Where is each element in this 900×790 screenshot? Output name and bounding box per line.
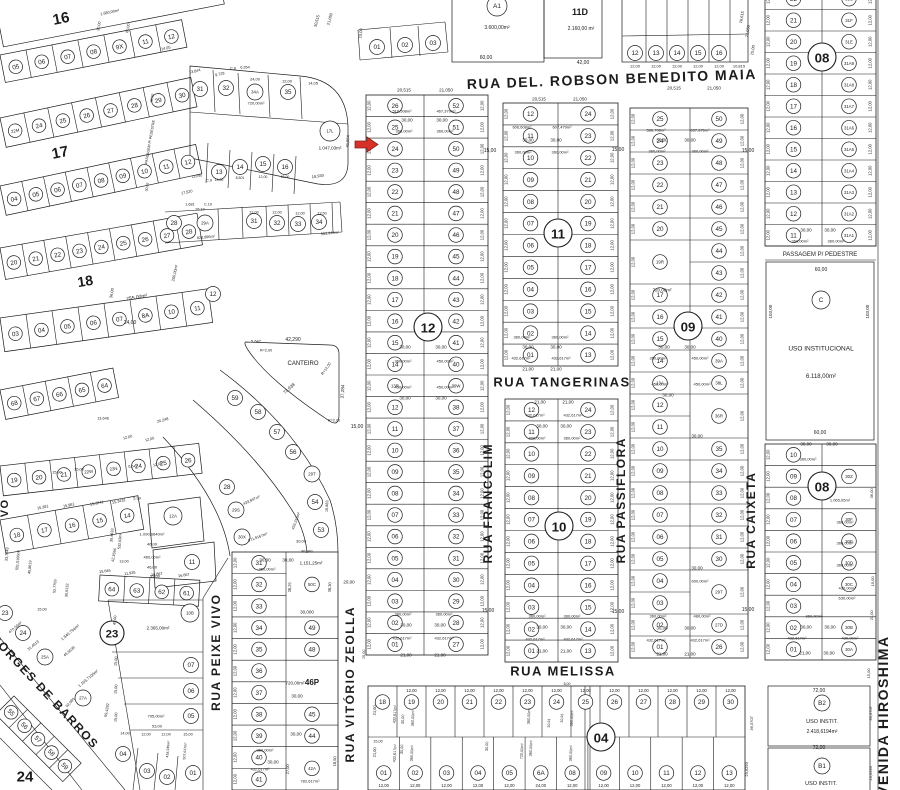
dimension-text: 12,00 bbox=[480, 638, 485, 649]
dimension-text: 450,00m² bbox=[652, 381, 670, 386]
dimension-text: 12,00 bbox=[480, 251, 485, 262]
dimension-text: 432,617m² bbox=[525, 412, 545, 417]
dimension-text: 12,00 bbox=[282, 78, 293, 83]
dimension-text: 30,00 bbox=[259, 558, 271, 563]
dimension-text: 12,00 bbox=[367, 552, 372, 563]
lot-number: 32 bbox=[715, 512, 723, 519]
block-number: 17 bbox=[50, 143, 70, 163]
lot-number: 28 bbox=[452, 620, 460, 627]
dimension-text: 12,00 bbox=[506, 601, 511, 612]
lot-number: 16 bbox=[391, 318, 399, 325]
dimension-text: 360,00m² bbox=[837, 540, 855, 545]
dimension-text: 46,00 bbox=[147, 564, 158, 569]
dimension-text: 15,00 bbox=[362, 649, 366, 659]
dimension-text: 12,00 bbox=[406, 688, 417, 693]
lot-number: 10 bbox=[527, 155, 535, 162]
dimension-text: 432,617m² bbox=[646, 637, 666, 642]
dimension-text: 720,00m² bbox=[248, 100, 266, 105]
dimension-text: 12,00 bbox=[249, 210, 259, 214]
lot-number: B2 bbox=[818, 700, 826, 707]
lot-number: 22 bbox=[656, 182, 664, 189]
lot-number: 08 bbox=[528, 495, 536, 502]
dimension-text: 12,00 bbox=[766, 622, 771, 633]
dimension-text: 432,617m² bbox=[392, 635, 412, 640]
dimension-text: 12,00 bbox=[506, 404, 511, 415]
lot-number: 25 bbox=[656, 116, 664, 123]
lot-number: 51 bbox=[452, 125, 460, 132]
dimension-text: 12,00 bbox=[480, 186, 485, 197]
dimension-text: 12,00 bbox=[766, 578, 771, 589]
dimension-text: 42,00 bbox=[577, 60, 590, 66]
street-label: RUA TANGERINAS bbox=[493, 375, 630, 390]
lot-number: 07 bbox=[790, 517, 798, 524]
dimension-text: 12,00 bbox=[480, 595, 485, 606]
lot-number: 07 bbox=[656, 512, 664, 519]
dimension-text: 12,00 bbox=[610, 108, 615, 119]
dimension-text: 630,00m² bbox=[839, 595, 857, 600]
dimension-text: 12,00 bbox=[610, 579, 615, 590]
dimension-text: 30,00 bbox=[550, 138, 562, 143]
dimension-text: 36,3707 bbox=[749, 715, 754, 730]
dimension-text: 12,00 bbox=[740, 179, 745, 190]
lot-number: 14 bbox=[584, 626, 592, 633]
dimension-text: 12,00 bbox=[868, 36, 873, 47]
lot-number: 24 bbox=[553, 699, 561, 706]
lot-number: 42 bbox=[452, 318, 460, 325]
lot-number: 12 bbox=[790, 211, 798, 218]
dimension-text: 12,00 bbox=[233, 730, 238, 741]
dimension-text: 12,00 bbox=[367, 121, 372, 132]
dimension-text: 12,00 bbox=[233, 665, 238, 676]
street-label: RUA CAIXETA bbox=[744, 472, 758, 569]
dimension-text: 30,00 bbox=[656, 626, 668, 631]
dimension-text: 12,00 bbox=[504, 240, 509, 251]
dimension-text: 12,00 bbox=[766, 143, 771, 154]
lot-number: 20 bbox=[35, 474, 43, 482]
dimension-text: 24,00 bbox=[250, 76, 261, 81]
lot-number: 30 bbox=[715, 556, 723, 563]
lot-number: 27A bbox=[79, 696, 87, 701]
dimension-text: 12,00 bbox=[740, 619, 745, 630]
dimension-text: 12,00 bbox=[367, 617, 372, 628]
dimension-text: 27,00 bbox=[285, 763, 291, 774]
dimension-text: 15,90 bbox=[52, 470, 62, 474]
dimension-text: 12,00 bbox=[367, 595, 372, 606]
dimension-text: 12,00 bbox=[631, 333, 636, 344]
lot-number: 30 bbox=[727, 699, 735, 706]
dimension-text: 12,00 bbox=[367, 444, 372, 455]
lot-number: 12 bbox=[527, 111, 535, 118]
lot-number: 24 bbox=[584, 111, 592, 118]
dimension-text: 30,00 bbox=[435, 396, 447, 401]
dimension-text: 12,00 bbox=[295, 211, 305, 215]
lot-number: 35 bbox=[452, 469, 460, 476]
lot-number: 04 bbox=[474, 770, 482, 777]
dimension-text: 53,00 bbox=[152, 723, 163, 728]
dimension-text: 15,00 bbox=[114, 712, 119, 722]
lot-number: 16 bbox=[656, 314, 664, 321]
dimension-text: 30,00 bbox=[485, 741, 489, 751]
dimension-text: 15,00 bbox=[742, 148, 755, 154]
lot-number: 08 bbox=[391, 491, 399, 498]
dimension-text: 24,00 bbox=[124, 320, 137, 326]
lot-number: 15 bbox=[656, 336, 664, 343]
dimension-text: 12,00 bbox=[766, 492, 771, 503]
lot-number: A1 bbox=[493, 3, 501, 10]
lot-number: 16 bbox=[715, 50, 723, 57]
dimension-text: 12,00 bbox=[651, 63, 662, 68]
dimension-text: 21,00 bbox=[400, 653, 412, 658]
lot-number: 31A1 bbox=[844, 233, 855, 238]
lot-number: 14 bbox=[236, 164, 244, 171]
lot-number: 37 bbox=[452, 426, 460, 433]
lot-number: 46 bbox=[452, 232, 460, 239]
lot-number: 49 bbox=[715, 138, 723, 145]
dimension-text: 12,00 bbox=[631, 575, 636, 586]
lot-number: 17 bbox=[584, 265, 592, 272]
lot-number: 14 bbox=[790, 168, 798, 175]
block-number: 04 bbox=[594, 730, 609, 745]
lot-number: 08 bbox=[790, 495, 798, 502]
dimension-text: 1,681 bbox=[185, 202, 195, 206]
dimension-text: 12,00 bbox=[506, 536, 511, 547]
dimension-text: 12,00 bbox=[480, 315, 485, 326]
dimension-text: 12,00 bbox=[480, 401, 485, 412]
dimension-text: 2.160,00 m² bbox=[568, 26, 595, 32]
lot-number: 05 bbox=[527, 265, 535, 272]
dimension-text: 30,00 bbox=[800, 228, 812, 233]
dimension-text: 21,00 bbox=[534, 400, 546, 405]
dimension-text: 1.047,03m² bbox=[319, 146, 342, 151]
lot-number: 20 bbox=[437, 699, 445, 706]
lot-number: 13 bbox=[652, 50, 660, 57]
lot-number: 31A5 bbox=[844, 147, 855, 152]
lot-number: 29T bbox=[308, 472, 316, 477]
lot-number: 36R bbox=[715, 414, 723, 419]
lot-number: 12A bbox=[169, 514, 177, 519]
lot-number: 40 bbox=[255, 755, 263, 762]
dimension-text: 12,00 bbox=[580, 688, 591, 693]
lot-number: 42A bbox=[308, 766, 316, 771]
dimension-text: 30,03 bbox=[560, 714, 564, 723]
map-viewport: 050607089X111222M24252627282930040506070… bbox=[0, 0, 900, 790]
dimension-text: 12,00 bbox=[868, 100, 873, 111]
lot-number: 26 bbox=[715, 644, 723, 651]
dimension-text: 60,00 bbox=[814, 430, 827, 436]
dimension-text: 30,00 bbox=[684, 626, 696, 631]
lot-number: 04 bbox=[790, 582, 798, 589]
dimension-text: 38,30 bbox=[327, 581, 333, 592]
dimension-text: 12,00 bbox=[868, 122, 873, 133]
lot-number: 41 bbox=[452, 340, 460, 347]
dimension-text: 46,00 bbox=[147, 541, 158, 546]
dimension-text: 12,00 bbox=[868, 165, 873, 176]
dimension-text: 20,515 bbox=[532, 97, 546, 102]
dimension-text: 12,00 bbox=[610, 404, 615, 415]
dimension-text: 12,00 bbox=[610, 305, 615, 316]
dimension-text: 12,00 bbox=[631, 256, 636, 267]
lot-number: 16 bbox=[281, 164, 289, 171]
dimension-text: 12,00 bbox=[367, 358, 372, 369]
lot-number: 22 bbox=[584, 155, 592, 162]
dimension-text: 12,00 bbox=[631, 531, 636, 542]
lot-number: 24 bbox=[391, 146, 399, 153]
dimension-text: 12,00 bbox=[504, 305, 509, 316]
lot-number: 21 bbox=[391, 211, 399, 218]
dimension-text: 15,00 bbox=[351, 424, 364, 430]
dimension-text: 12,00 bbox=[740, 641, 745, 652]
street-label: RUA VITÓRIO ZEOLLA bbox=[342, 606, 357, 763]
lot-number: 38L bbox=[715, 381, 723, 386]
lot-number: 29A bbox=[201, 221, 209, 226]
dimension-text: 13,00 bbox=[215, 178, 224, 182]
dimension-text: 12,00 bbox=[609, 688, 620, 693]
dimension-text: 12,00 bbox=[610, 218, 615, 229]
dimension-text: 36,00 bbox=[869, 488, 874, 499]
lot-number: 59 bbox=[231, 395, 239, 402]
dimension-text: 360,00m² bbox=[436, 611, 454, 616]
lot-number: 37 bbox=[255, 690, 263, 697]
lot-number: 38 bbox=[452, 405, 460, 412]
dimension-text: 12,00 bbox=[638, 688, 649, 693]
dimension-text: 21,00 bbox=[522, 367, 534, 372]
lot-number: 44 bbox=[715, 248, 723, 255]
dimension-text: 21,00 bbox=[372, 704, 378, 715]
lot-number: 45 bbox=[452, 254, 460, 261]
dimension-text: 12,00 bbox=[610, 327, 615, 338]
street-label: VO bbox=[0, 498, 11, 517]
lot-number: 29 bbox=[698, 699, 706, 706]
dimension-text: 12,00 bbox=[367, 423, 372, 434]
dimension-text: 12,00 bbox=[480, 272, 485, 283]
dimension-text: 30,03 bbox=[547, 719, 551, 728]
dimension-text: 12,00 bbox=[504, 349, 509, 360]
lot-number: 41 bbox=[715, 314, 723, 321]
dimension-text: 12,00 bbox=[766, 643, 771, 654]
block-number: 08 bbox=[815, 50, 830, 65]
dimension-text: 21,050 bbox=[573, 97, 587, 102]
dimension-text: 12,00 bbox=[631, 597, 636, 608]
dimension-text: 30,00 bbox=[800, 625, 812, 630]
lot-number: 17 bbox=[584, 561, 592, 568]
dimension-text: 12,00 bbox=[473, 783, 484, 788]
dimension-text: 12,00 bbox=[504, 283, 509, 294]
lot-number: 20 bbox=[584, 495, 592, 502]
lot-number: 22 bbox=[584, 451, 592, 458]
lot-number: 07 bbox=[187, 662, 195, 669]
dimension-text: 3.600,00m² bbox=[484, 25, 510, 31]
lot-number: 18 bbox=[584, 539, 592, 546]
dimension-text: 12,00 bbox=[480, 121, 485, 132]
dimension-text: 12,00 bbox=[441, 783, 452, 788]
dimension-text: 12,00 bbox=[504, 218, 509, 229]
dimension-text: 12,00 bbox=[367, 186, 372, 197]
dimension-text: 607,479m² bbox=[552, 124, 572, 129]
lot-number: 03 bbox=[527, 308, 535, 315]
dimension-text: 467,379m² bbox=[436, 108, 456, 113]
dimension-text: 30,00 bbox=[824, 228, 836, 233]
lot-number: 49 bbox=[452, 168, 460, 175]
lot-number: 02 bbox=[528, 626, 536, 633]
dimension-text: 30,00 bbox=[684, 138, 696, 143]
dimension-text: 12,00 bbox=[610, 196, 615, 207]
dimension-text: 12,00 bbox=[161, 732, 171, 736]
dimension-text: 12,00 bbox=[740, 223, 745, 234]
dimension-text: 432,617m² bbox=[563, 636, 583, 641]
lot-number: B1 bbox=[818, 763, 826, 770]
dimension-text: 12,00 bbox=[725, 688, 736, 693]
dimension-text: 12,00 bbox=[631, 355, 636, 366]
lot-number: 63 bbox=[133, 587, 141, 594]
dimension-text: 12,00 bbox=[504, 108, 509, 119]
dimension-text: 30,00 bbox=[399, 396, 411, 401]
lot-number: 02 bbox=[163, 774, 171, 781]
dimension-text: 30,00 bbox=[658, 345, 670, 350]
lot-number: 47 bbox=[452, 211, 460, 218]
dimension-text: R=2,00 bbox=[260, 348, 272, 352]
dimension-text: 38,25 bbox=[287, 581, 293, 592]
dimension-text: 12,00 bbox=[610, 426, 615, 437]
dimension-text: 12,00 bbox=[480, 574, 485, 585]
dimension-text: 12,00 bbox=[480, 100, 485, 111]
dimension-text: 30,00 bbox=[536, 625, 548, 630]
dimension-text: 12,00 bbox=[480, 164, 485, 175]
dimension-text: 600,00m² bbox=[692, 578, 710, 583]
lot-number: 05 bbox=[790, 560, 798, 567]
dimension-text: 30,00 bbox=[560, 625, 572, 630]
dimension-text: 12,00 bbox=[480, 208, 485, 219]
dimension-text: 30,00 bbox=[560, 424, 572, 429]
lot-number: 03 bbox=[143, 768, 151, 775]
lot-number: 23 bbox=[524, 699, 532, 706]
dimension-text: 12,00 bbox=[141, 732, 151, 736]
lot-number: 04 bbox=[527, 286, 535, 293]
lot-number: 29T bbox=[715, 590, 723, 595]
dimension-text: 12,00 bbox=[480, 380, 485, 391]
lot-number: 15 bbox=[259, 161, 267, 168]
block-number: 08 bbox=[815, 479, 830, 494]
lot-number: 01 bbox=[391, 641, 399, 648]
dimension-text: 360,00m² bbox=[564, 435, 582, 440]
lot-number: 34 bbox=[715, 468, 723, 475]
lot-number: 46P bbox=[305, 678, 320, 687]
dimension-text: 12,00 bbox=[631, 487, 636, 498]
lot-number: 19 bbox=[584, 517, 592, 524]
dimension-text: 450,00m² bbox=[437, 358, 455, 363]
lot-number: 21 bbox=[584, 473, 592, 480]
dimension-text: 12,00 bbox=[233, 557, 238, 568]
lot-number: 09 bbox=[528, 473, 536, 480]
dimension-text: 30,00 bbox=[550, 345, 562, 350]
lot-number: 27 bbox=[640, 699, 648, 706]
dimension-text: 432,617m² bbox=[690, 637, 710, 642]
dimension-text: 360,00m² bbox=[650, 355, 668, 360]
dimension-text: 15,00 bbox=[114, 684, 119, 694]
lot-number: 31G bbox=[845, 0, 854, 1]
lot-number: 06 bbox=[527, 243, 535, 250]
dimension-text: 360,00m² bbox=[837, 562, 855, 567]
dimension-text: 30,00 bbox=[401, 118, 413, 123]
street-label: RUA FRANCOLIM bbox=[481, 443, 495, 563]
dimension-text: 12,00 bbox=[610, 349, 615, 360]
lot-number: 26 bbox=[611, 699, 619, 706]
lot-number: 15 bbox=[584, 604, 592, 611]
dimension-text: 12,00 bbox=[766, 600, 771, 611]
dimension-text: 12,00 bbox=[480, 617, 485, 628]
dimension-text: 14,05 bbox=[308, 80, 319, 85]
dimension-text: 30,00 bbox=[267, 760, 279, 765]
dimension-text: 12,00 bbox=[367, 315, 372, 326]
dimension-text: C.10 bbox=[204, 202, 212, 206]
lot-number: 18 bbox=[584, 243, 592, 250]
dimension-text: 12,00 bbox=[868, 79, 873, 90]
dimension-text: 21,050 bbox=[439, 88, 453, 93]
dimension-text: 360,00m² bbox=[395, 611, 413, 616]
dimension-text: 12,00 bbox=[766, 14, 771, 25]
lot-number: 13 bbox=[726, 770, 734, 777]
dimension-text: 12,00 bbox=[435, 688, 446, 693]
lot-number: 35 bbox=[715, 446, 723, 453]
dimension-text: 480,00m² bbox=[694, 613, 712, 618]
lot-number: 18 bbox=[790, 82, 798, 89]
lot-number: 17 bbox=[656, 292, 664, 299]
lot-number: 43 bbox=[715, 270, 723, 277]
dimension-text: 12,00 bbox=[740, 333, 745, 344]
dimension-text: 12,00 bbox=[766, 186, 771, 197]
dimension-text: 30,00 bbox=[656, 138, 668, 143]
block-number: 11D bbox=[572, 7, 589, 17]
dimension-text: 12,00 bbox=[367, 337, 372, 348]
dimension-text: 12,00 bbox=[567, 783, 578, 788]
lot-number: 24 bbox=[19, 630, 27, 637]
lot-number: 16 bbox=[584, 286, 592, 293]
lot-number: 31A8 bbox=[844, 82, 855, 87]
dimension-text: 1.065,05m² bbox=[830, 497, 851, 502]
dimension-text: 12,00 bbox=[506, 470, 511, 481]
dimension-text: 360,00m² bbox=[552, 334, 570, 339]
lot-number: 20 bbox=[584, 199, 592, 206]
dimension-text: 30,00 bbox=[291, 694, 303, 699]
dimension-text: 30,00 bbox=[522, 345, 534, 350]
dimension-text: 450,00m² bbox=[437, 384, 455, 389]
lot-number: 31 bbox=[715, 534, 723, 541]
lot-number: 38 bbox=[255, 711, 263, 718]
dimension-text: 12,00 bbox=[693, 783, 704, 788]
dimension-text: 12,00 bbox=[610, 130, 615, 141]
dimension-text: 20,515 bbox=[397, 88, 411, 93]
block-number: 24 bbox=[17, 768, 34, 785]
dimension-text: 6,354 bbox=[240, 65, 250, 69]
dimension-text: 30,00 bbox=[691, 566, 703, 571]
dimension-text: 12,00 bbox=[740, 377, 745, 388]
dimension-text: 12,00 bbox=[696, 688, 707, 693]
lot-number: 17 bbox=[790, 103, 798, 110]
lot-number: 40 bbox=[452, 361, 460, 368]
dimension-text: 21,00 bbox=[550, 367, 562, 372]
lot-number: 13 bbox=[584, 648, 592, 655]
dimension-text: 360,00m² bbox=[828, 238, 846, 243]
lot-number: 01 bbox=[189, 770, 197, 777]
dimension-text: 12,00 bbox=[378, 783, 389, 788]
dimension-text: 12,00 bbox=[504, 783, 515, 788]
lot-number: 02 bbox=[412, 770, 420, 777]
lot-number: 08 bbox=[569, 770, 577, 777]
dimension-text: 12,00 bbox=[631, 113, 636, 124]
lot-number: 01 bbox=[380, 770, 388, 777]
lot-number: 6A bbox=[537, 770, 546, 777]
dimension-text: 30,00 bbox=[823, 651, 835, 656]
dimension-text: 430,00m² bbox=[839, 585, 857, 590]
